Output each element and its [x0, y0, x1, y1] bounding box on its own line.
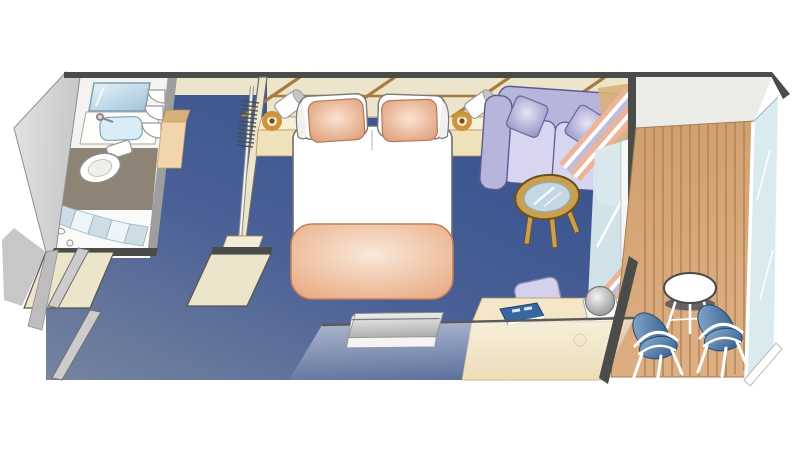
mirror: [89, 83, 150, 111]
wardrobe-front-edge: [211, 247, 273, 254]
pillow-accent-left: [308, 98, 366, 143]
front-glass-wall: [289, 318, 634, 380]
stateroom-floorplan: [0, 0, 800, 450]
pillow-accent-right: [381, 99, 437, 142]
foot-blanket: [291, 224, 453, 299]
shower: [52, 204, 152, 248]
bathroom: [14, 72, 177, 256]
balcony: [611, 77, 782, 386]
wardrobe-back-wall: [166, 77, 262, 95]
floorplan-canvas: [0, 0, 800, 450]
balcony-overhead: [636, 77, 772, 128]
flat-tv: [345, 310, 444, 349]
